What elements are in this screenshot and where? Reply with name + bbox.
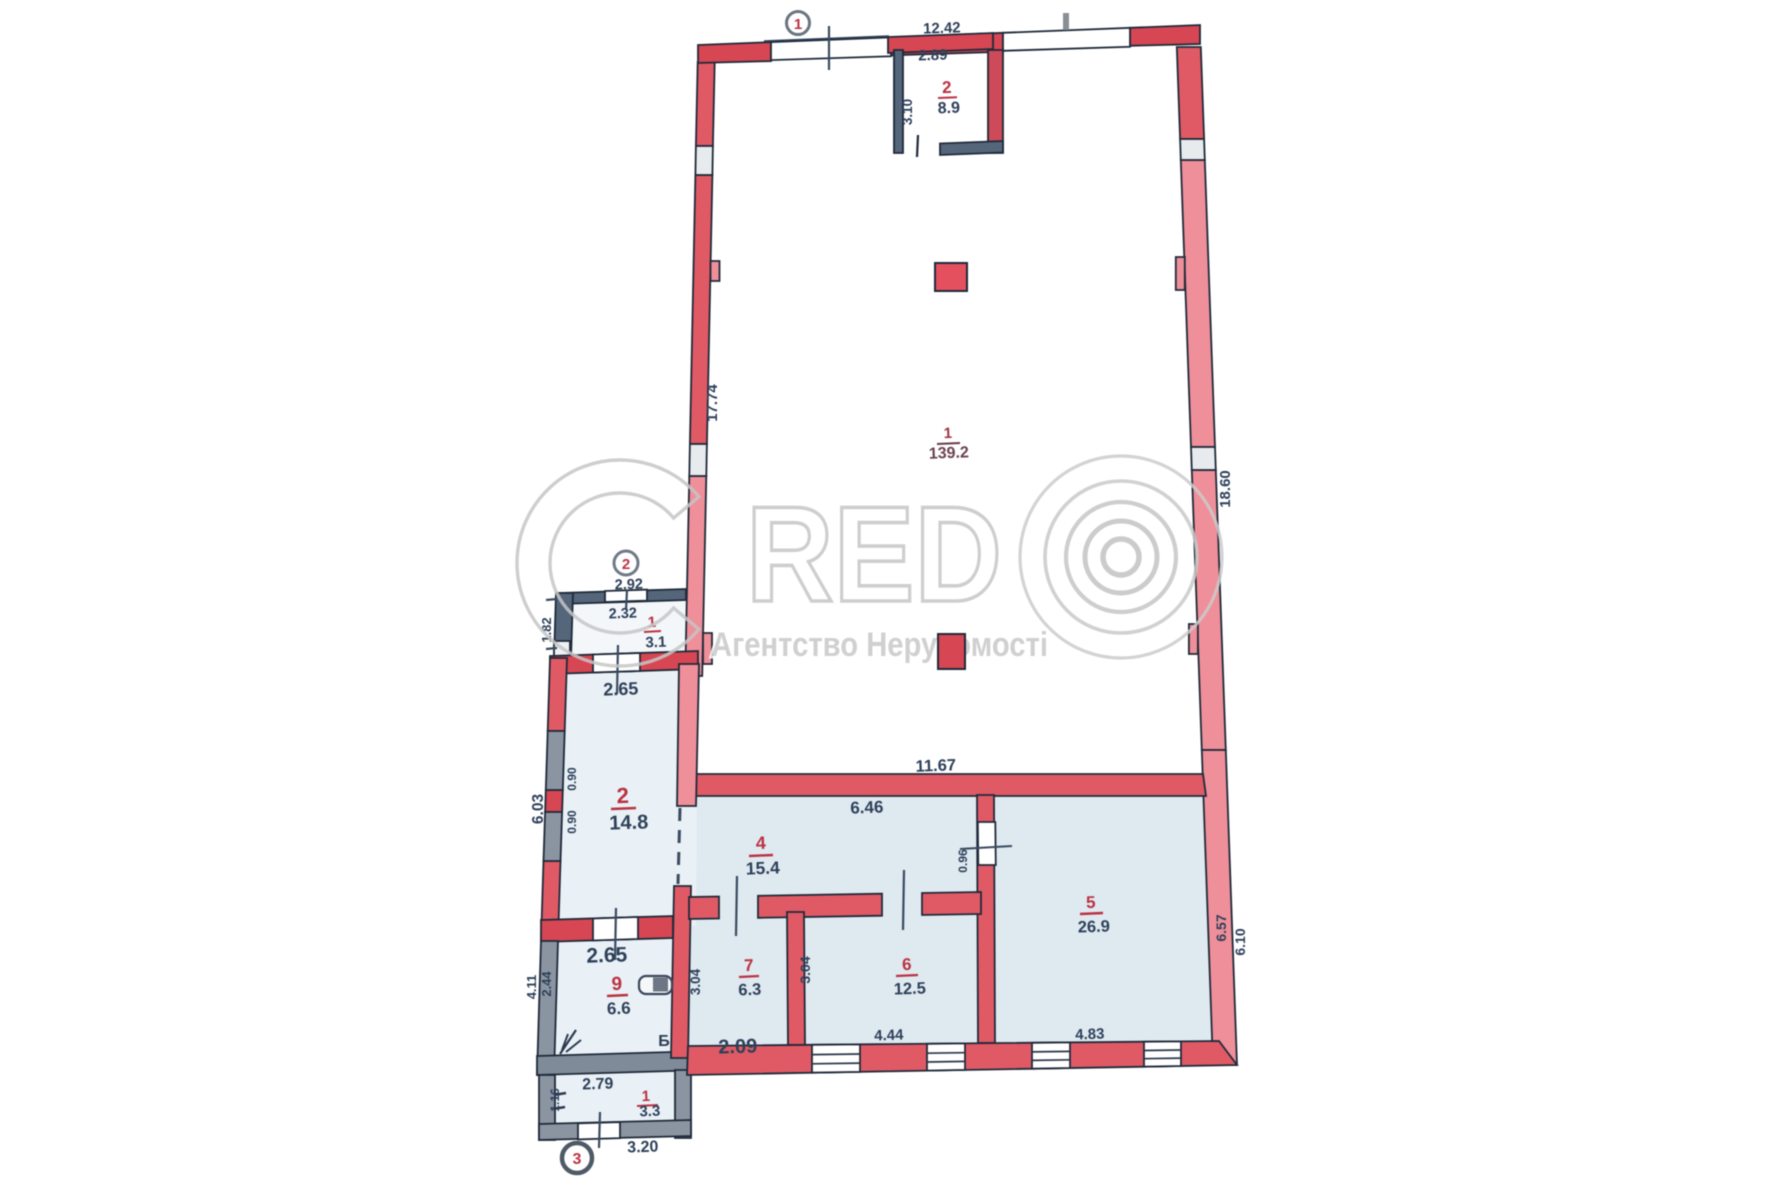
svg-text:2: 2 [616,783,629,808]
svg-text:7: 7 [744,956,754,975]
svg-text:Б: Б [658,1033,670,1050]
svg-text:RED: RED [746,478,1002,630]
svg-text:6.6: 6.6 [607,999,631,1019]
svg-text:26.9: 26.9 [1077,917,1110,936]
svg-text:11.67: 11.67 [915,756,956,775]
svg-text:3.3: 3.3 [639,1103,660,1121]
svg-text:6.57: 6.57 [1213,914,1229,941]
svg-text:139.2: 139.2 [929,444,970,462]
svg-text:15.4: 15.4 [745,857,780,878]
svg-text:2.32: 2.32 [608,606,637,623]
svg-text:2.89: 2.89 [918,46,948,64]
svg-text:3.04: 3.04 [797,956,813,983]
svg-text:3.1: 3.1 [645,634,666,652]
svg-text:6.46: 6.46 [850,797,884,817]
svg-text:2: 2 [942,78,952,97]
svg-text:6.3: 6.3 [738,981,762,1000]
svg-text:4.44: 4.44 [874,1026,904,1044]
svg-text:6.10: 6.10 [1232,928,1248,955]
svg-text:2.79: 2.79 [582,1075,614,1093]
svg-text:Агентство Нерухомості: Агентство Нерухомості [711,626,1048,664]
svg-text:3: 3 [573,1151,582,1168]
svg-text:2.65: 2.65 [586,943,628,967]
svg-text:2.44: 2.44 [539,971,554,997]
svg-text:8.9: 8.9 [937,100,960,118]
svg-text:2.65: 2.65 [603,678,639,699]
svg-text:3.04: 3.04 [688,968,703,995]
svg-text:9: 9 [611,974,622,995]
svg-text:4: 4 [755,833,766,853]
svg-text:2.09: 2.09 [718,1035,758,1058]
svg-text:2: 2 [622,556,630,573]
svg-text:0.90: 0.90 [565,810,579,834]
svg-text:1: 1 [943,425,952,442]
svg-text:18.60: 18.60 [1217,470,1234,508]
svg-text:3.20: 3.20 [627,1138,659,1156]
svg-text:3.10: 3.10 [900,99,915,125]
svg-text:12.42: 12.42 [923,19,961,37]
svg-text:12.5: 12.5 [893,979,926,998]
svg-text:4.83: 4.83 [1075,1025,1105,1043]
svg-text:5: 5 [1086,893,1096,912]
svg-text:4.11: 4.11 [524,975,539,1000]
svg-text:6: 6 [902,955,912,974]
svg-text:2.92: 2.92 [614,577,643,594]
svg-text:17.74: 17.74 [704,384,721,422]
svg-text:0.90: 0.90 [565,767,579,791]
svg-text:0.96: 0.96 [956,849,970,873]
svg-text:6.03: 6.03 [530,794,547,825]
svg-text:1: 1 [794,16,802,33]
svg-text:14.8: 14.8 [609,811,649,834]
